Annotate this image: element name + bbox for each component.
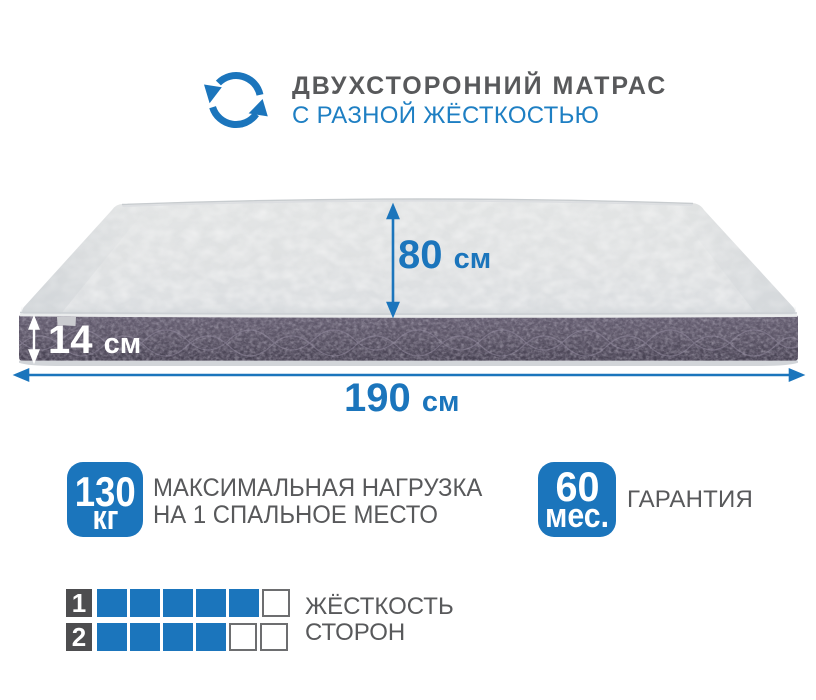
svg-text:190 см: 190 см — [344, 376, 459, 420]
svg-text:мес.: мес. — [545, 497, 609, 535]
svg-text:кг: кг — [93, 499, 119, 537]
